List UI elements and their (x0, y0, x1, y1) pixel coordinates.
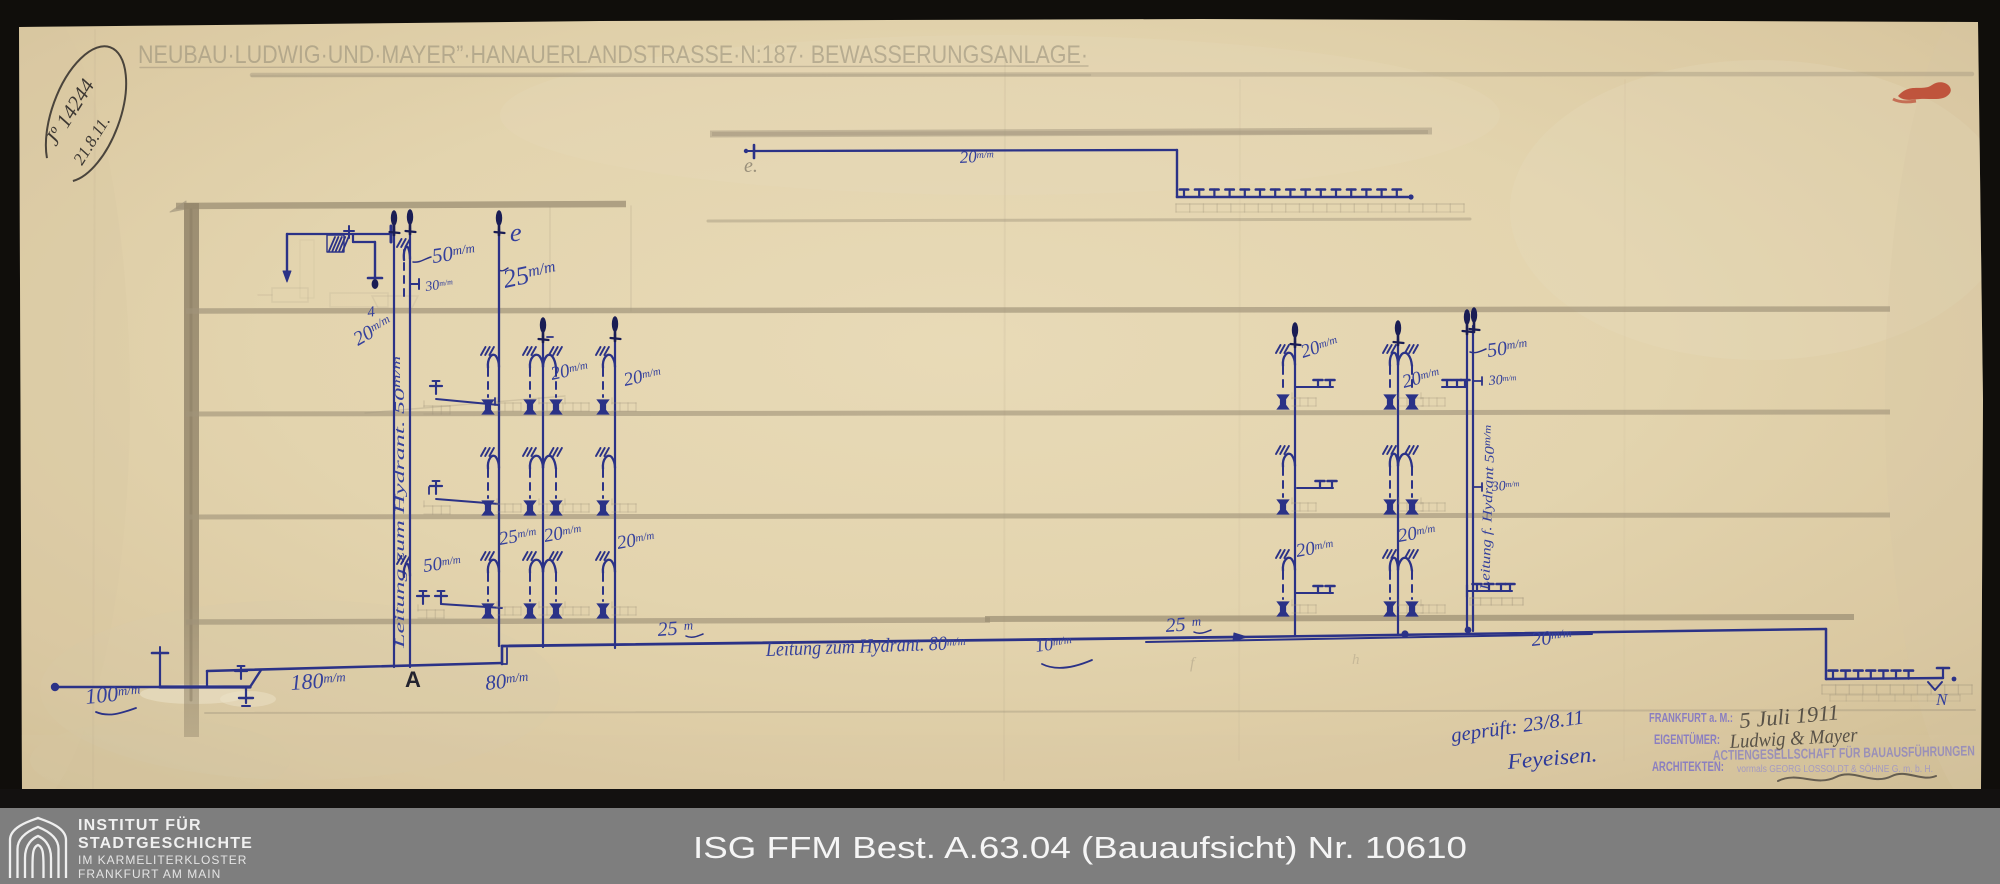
svg-text:NEUBAU·LUDWIG·UND·MAYER”·HANAU: NEUBAU·LUDWIG·UND·MAYER”·HANAUERLANDSTRA… (138, 41, 1088, 69)
svg-text:e.: e. (744, 155, 758, 177)
svg-text:25: 25 (1165, 614, 1186, 637)
svg-text:FRANKFURT a. M.:: FRANKFURT a. M.: (1649, 710, 1733, 725)
svg-text:INSTITUT FÜR: INSTITUT FÜR (78, 815, 202, 834)
svg-text:ISG FFM Best. A.63.04 (Bauaufs: ISG FFM Best. A.63.04 (Bauaufsicht) Nr. … (693, 830, 1467, 865)
svg-text:N: N (1935, 690, 1949, 709)
svg-text:EIGENTÜMER:: EIGENTÜMER: (1654, 731, 1720, 747)
svg-text:h: h (1352, 652, 1360, 668)
svg-text:Leitung zum Hydrant. 50m/m: Leitung zum Hydrant. 50m/m (392, 356, 408, 650)
svg-text:25: 25 (657, 618, 678, 641)
svg-text:m: m (683, 617, 693, 633)
svg-text:FRANKFURT AM MAIN: FRANKFURT AM MAIN (78, 867, 221, 881)
svg-text:m: m (1191, 613, 1201, 629)
svg-text:e: e (510, 218, 522, 247)
svg-text:STADTGESCHICHTE: STADTGESCHICHTE (78, 835, 253, 852)
svg-text:IM KARMELITERKLOSTER: IM KARMELITERKLOSTER (78, 853, 247, 867)
svg-text:A: A (405, 667, 421, 692)
